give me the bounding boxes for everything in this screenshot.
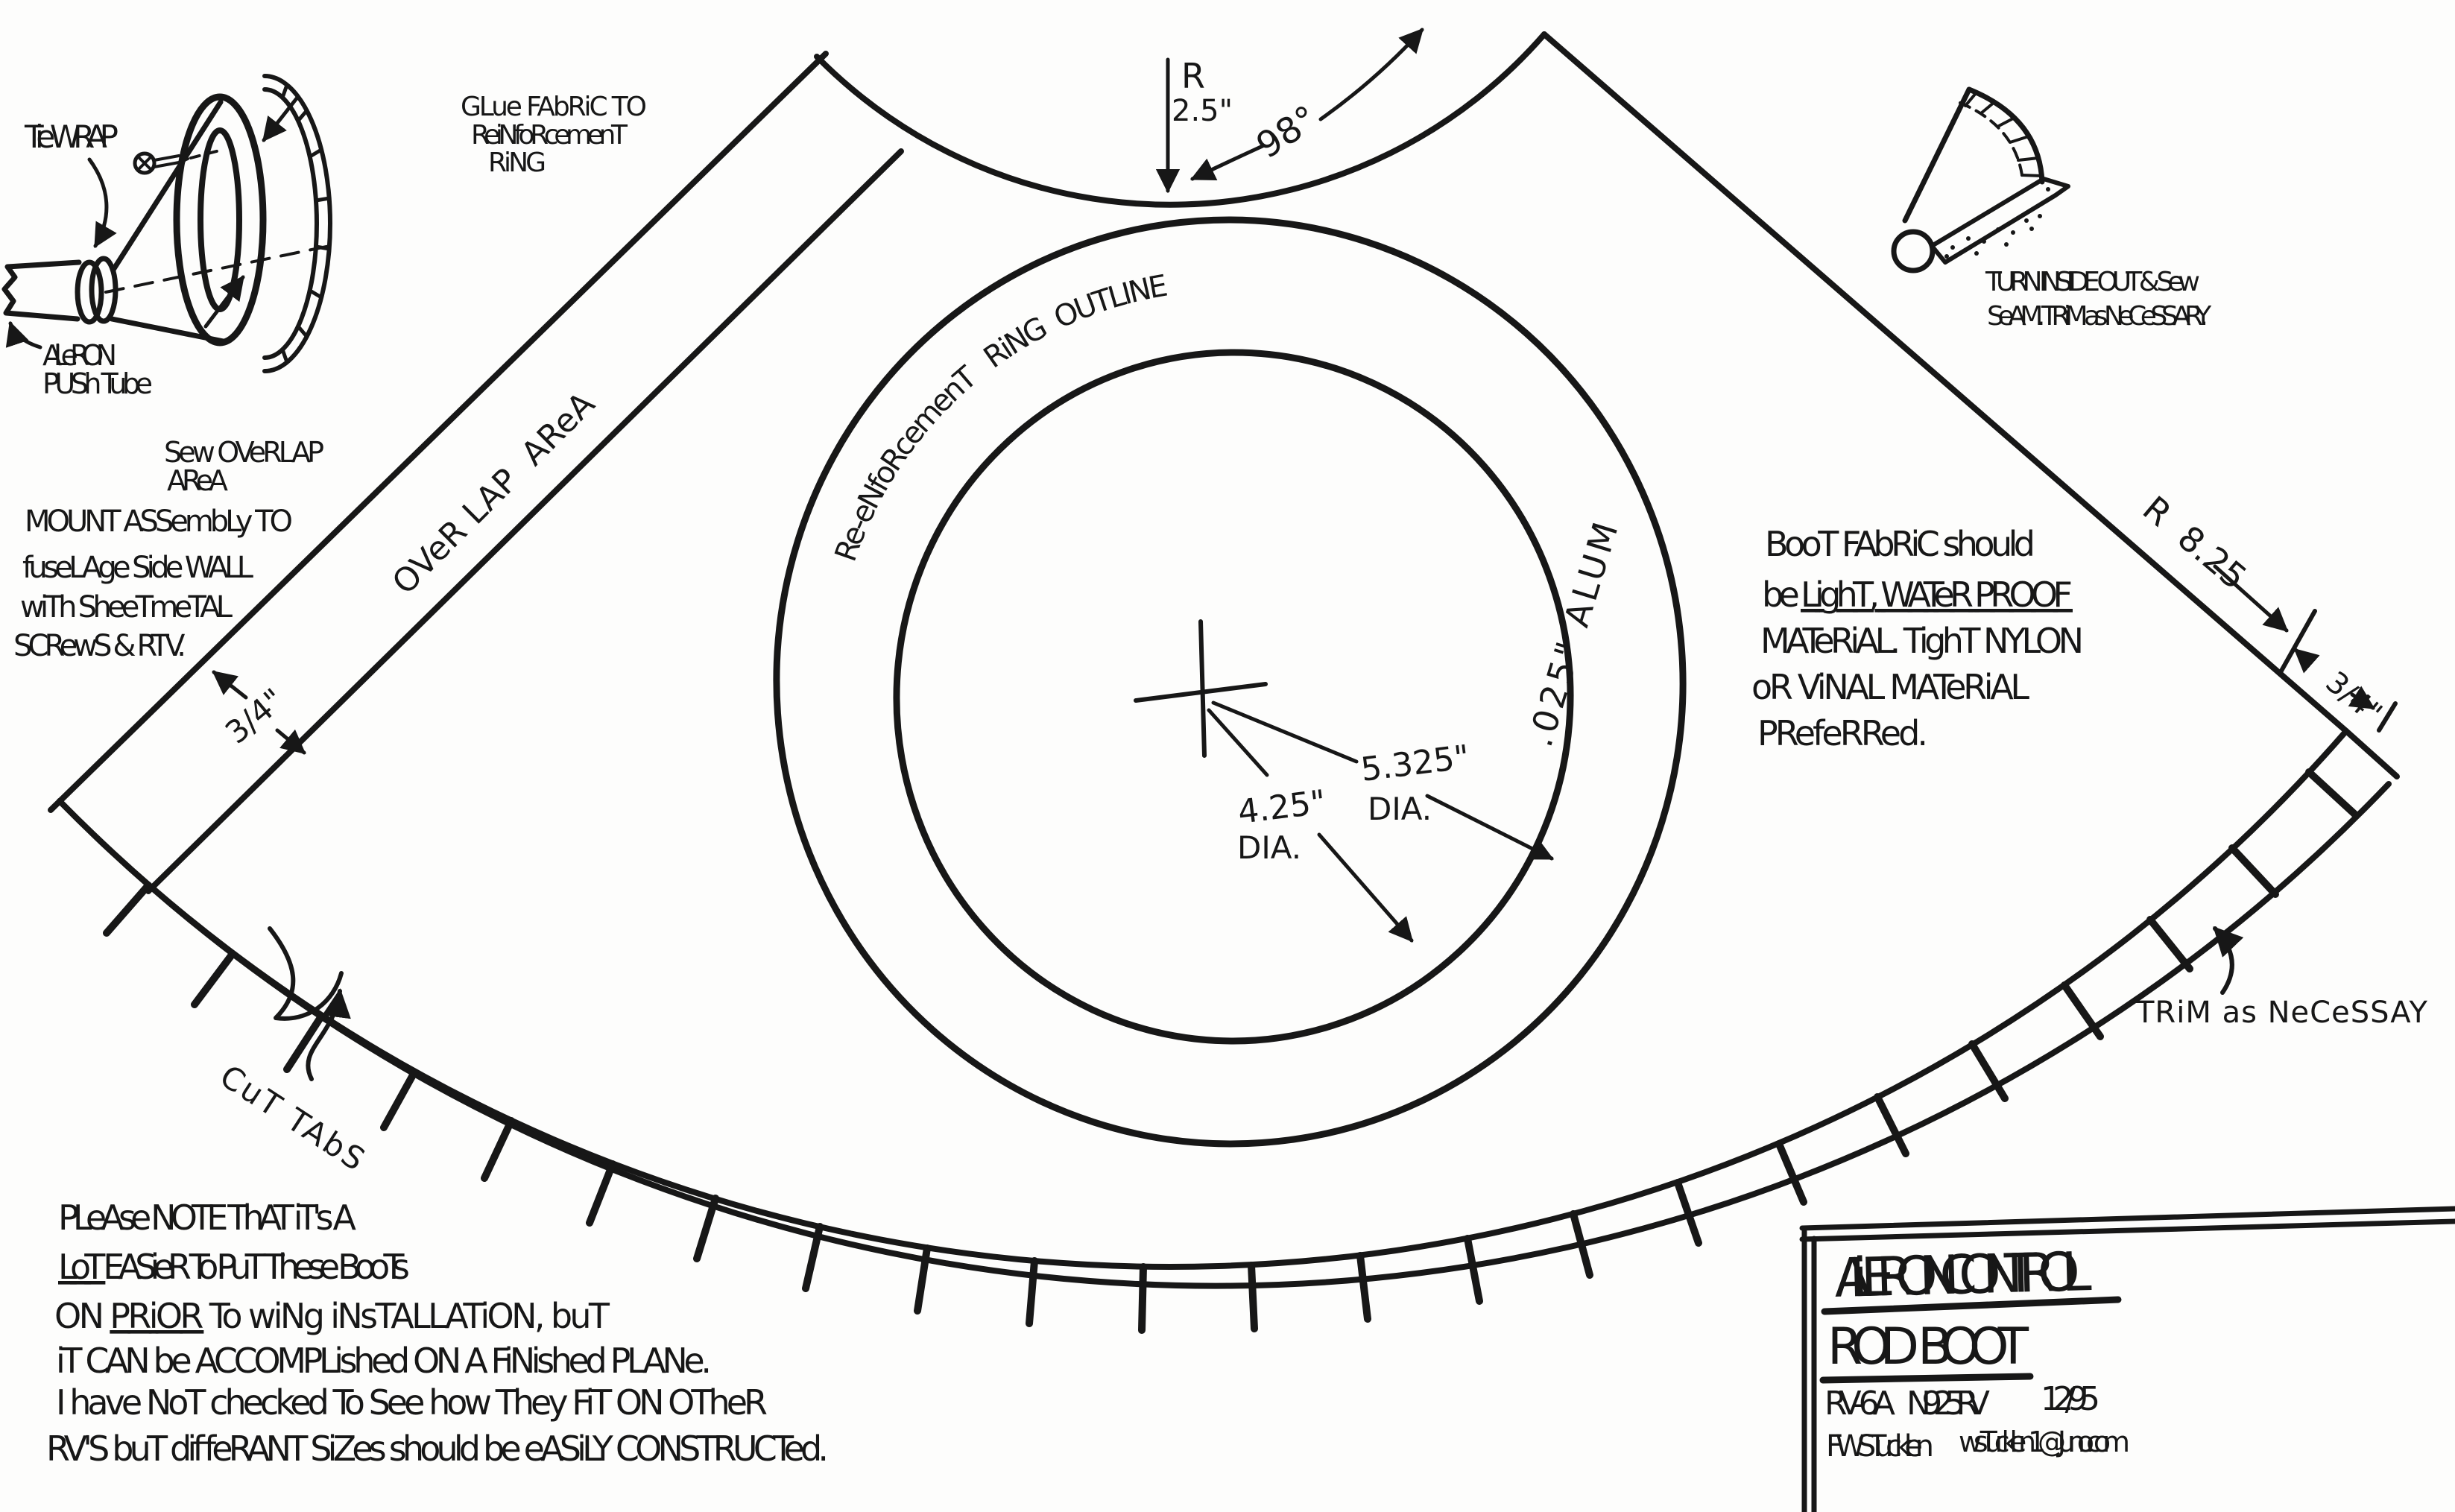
tab-band-inner-arc <box>60 731 2346 1267</box>
mount-note-l3: wiTh SheeTmeTAL <box>20 590 233 624</box>
outer-dia-line <box>1213 703 1356 762</box>
right-edge <box>1544 34 2397 776</box>
glue-note-arrow <box>264 98 297 140</box>
glue-note-l1: GLue FAbRiC TO <box>461 92 647 122</box>
assembly-inset: Tie WRAP GLue FAbRiC TO ReiNfoRcemenT Ri… <box>4 76 647 663</box>
tab-left-label: 3/4" <box>218 681 291 750</box>
fabric-note-l2-underlined: LighT, WATeR PROOF <box>1801 575 2073 615</box>
scanned-drawing-page: OVeR LAP AReA CuT TAbS Re-eNfoRcemenT Ri… <box>0 0 2455 1512</box>
ring-inner-circle <box>879 335 1587 1058</box>
title-underline-2 <box>1823 1376 2030 1380</box>
title-email: wsTucklen1@Juno.com <box>1959 1426 2130 1458</box>
fabric-note-l2-prefix: be <box>1762 575 1806 615</box>
angle-arrow-left <box>1192 146 1263 179</box>
fabric-note: BooT FAbRiC should be LighT, WATeR PROOF… <box>1751 524 2084 753</box>
mount-note-l1: MOUNT ASSembLy TO <box>25 504 293 539</box>
tie-wrap-label: Tie WRAP <box>24 118 119 155</box>
inner-dia-arrow <box>1319 835 1412 940</box>
overlap-area-label: OVeR LAP AReA <box>385 383 604 602</box>
title-date: 12/95 <box>2041 1380 2100 1418</box>
angle-arrow-right <box>1321 30 1422 119</box>
centerline <box>106 244 337 292</box>
outer-radius-label: R 8.25 <box>2135 488 2255 598</box>
note-line-4: iT CAN be ACCOMPLished ON A FiNished PLA… <box>56 1341 712 1381</box>
mount-note-l2: fuseLAge Side WALL <box>22 551 254 585</box>
cut-tabs-label: CuT TAbS <box>214 1057 373 1179</box>
cone-body <box>112 102 224 341</box>
center-cross <box>1136 621 1266 756</box>
note-prior-underlined: PRiOR <box>110 1296 203 1336</box>
tab-band-outer-arc <box>60 784 2389 1286</box>
turn-note-l2: SeAM. TRiM as NeCeSSARY. <box>1987 301 2212 332</box>
push-tube <box>4 262 79 319</box>
note-line-2: LoT EASieR To PuT These BooTs <box>58 1247 410 1287</box>
note-line-6: RV'S buT diffeRANT SiZes should be eASiL… <box>46 1429 829 1469</box>
note-line-3-rest: To wiNg iNsTALLATiON, buT <box>201 1296 610 1336</box>
small-cone-ball <box>1894 232 1933 271</box>
fabric-note-l5: PRefeRRed. <box>1757 713 1928 753</box>
glue-note-l2: ReiNfoRcemenT <box>471 120 628 151</box>
fabric-note-l2: be LighT, WATeR PROOF <box>1762 575 2073 615</box>
title-author: FWSTucklen <box>1826 1429 1934 1464</box>
fabric-note-l3: MATeRiAL. TighT NYLON <box>1760 621 2084 661</box>
title-model: RV-6A <box>1824 1385 1895 1423</box>
seam-strip-dots <box>1944 187 2050 259</box>
turn-inset: TURN INSIDE OUT & Sew SeAM. TRiM as NeCe… <box>1894 89 2212 332</box>
mount-note-l4: SCRewS & RTV. <box>13 629 186 663</box>
ring-outline-textpath: Re-eNfoRcemenT RiNG OUTLINE <box>829 268 1171 566</box>
overlap-outer-edge <box>51 54 826 810</box>
r25-value: 2.5" <box>1172 94 1233 128</box>
push-tube-label-l2: PUSh Tube <box>42 367 153 400</box>
pattern-drawing: OVeR LAP AReA CuT TAbS Re-eNfoRcemenT Ri… <box>0 0 2455 1512</box>
inner-dia-label: DIA. <box>1237 829 1301 866</box>
turn-note-l1: TURN INSIDE OUT & Sew <box>1985 267 2200 297</box>
note-line-5: I have NoT checked To See how They FiT O… <box>56 1382 768 1423</box>
inner-dia-value: 4.25" <box>1236 783 1328 832</box>
main-pattern: OVeR LAP AReA CuT TAbS <box>51 34 2397 1330</box>
tie-wrap-arrow <box>89 159 107 246</box>
construction-note: PLeAse NOTE ThAT iT's A LoT EASieR To Pu… <box>46 1198 829 1469</box>
note-line-3: ON PRiOR To wiNg iNsTALLATiON, buT <box>54 1296 610 1336</box>
note-line-2-rest: EASieR To PuT These BooTs <box>99 1247 410 1287</box>
sew-note-l2: AReA <box>167 464 228 497</box>
tab-right-label: 3/4" <box>2319 665 2389 730</box>
outer-dia-value: 5.325" <box>1359 738 1471 788</box>
outer-radius-arrow <box>2215 566 2287 630</box>
angle-label: 98° <box>1249 98 1325 167</box>
title-registration: N925RV <box>1906 1385 1990 1423</box>
fabric-ring-hatches <box>282 85 329 362</box>
title-block: AiLERON CONTROL ROD BOOT RV-6A N925RV 12… <box>1802 1209 2455 1512</box>
note-line-1: PLeAse NOTE ThAT iT's A <box>58 1198 357 1238</box>
r25-r: R <box>1181 56 1205 96</box>
trim-label: TRiM as NeCeSSAY <box>2135 996 2428 1030</box>
fabric-note-l1: BooT FAbRiC should <box>1765 524 2035 564</box>
outer-dia-arrow <box>1427 796 1552 858</box>
tab-right-arrow-a <box>2296 650 2309 662</box>
title-line-2: ROD BOOT <box>1827 1318 2029 1376</box>
tab-left-arrow-a <box>214 672 246 698</box>
small-cone-left-edge <box>1905 89 1969 221</box>
reinforcement-ring-opening <box>200 130 239 309</box>
note-line-3-prefix: ON <box>54 1296 113 1336</box>
glue-note-l3: RiNG <box>488 148 546 178</box>
outer-dia-label: DIA. <box>1368 791 1432 827</box>
push-tube-arrow <box>10 323 40 347</box>
fabric-note-l4: oR ViNAL MATeRiAL <box>1751 667 2029 707</box>
